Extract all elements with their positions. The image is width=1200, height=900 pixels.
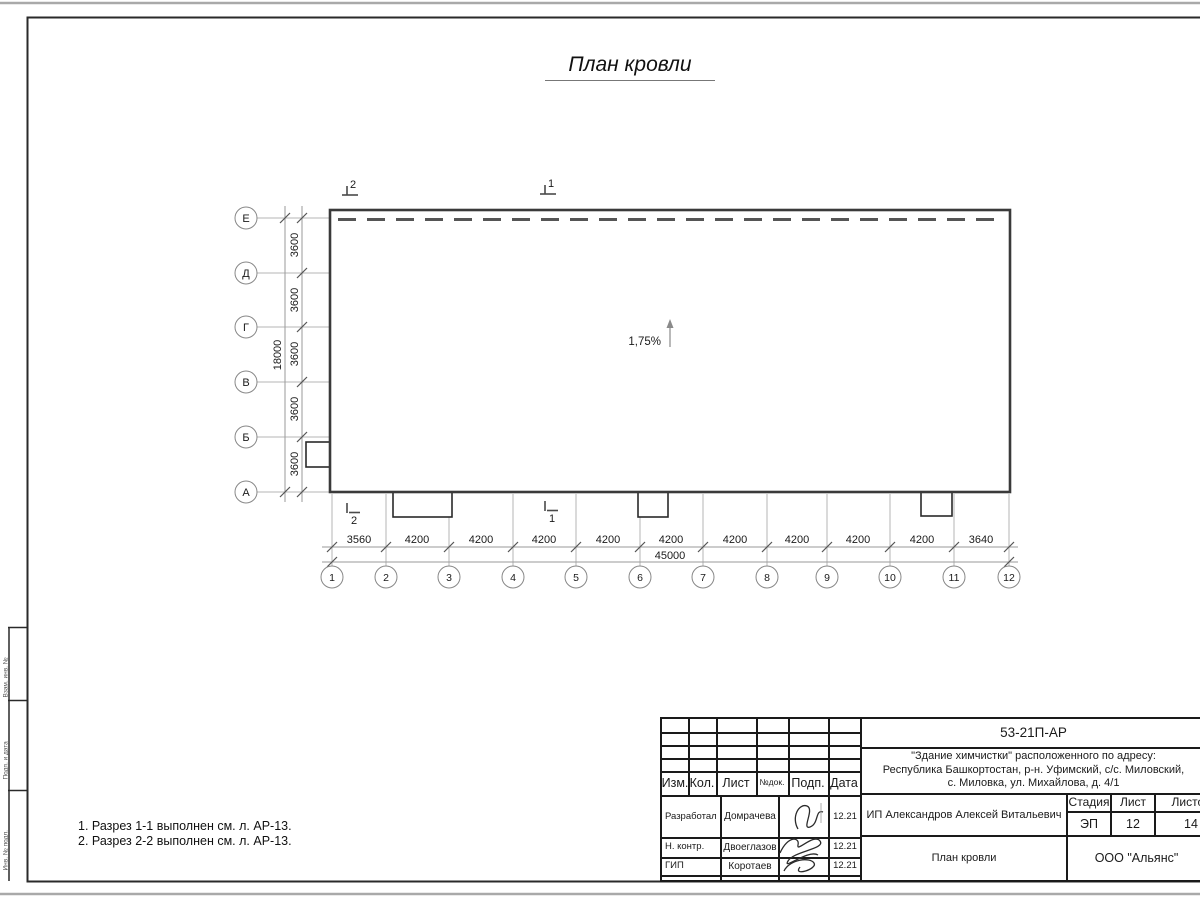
page-title: План кровли [545,53,715,81]
roof-projection-left [306,442,330,467]
col-axis-label: 8 [764,572,770,584]
signature-ncontrol-gip [774,831,830,879]
tb-date-ncontrol: 12.21 [830,838,860,857]
row-axis-label: Е [242,213,249,225]
slope-arrow-head [667,319,674,328]
row-axis-label: Д [242,268,250,280]
dim-value: 3560 [347,534,371,546]
section-marker-bottom-1: 1 [545,501,558,525]
slope-annotation: 1,75% [628,319,673,348]
tb-role-developer: Разработал [662,797,720,837]
col-axis-label: 7 [700,572,706,584]
dim-value: 4200 [405,534,429,546]
tb-col-data: Дата [828,771,860,795]
col-axis-label: 6 [637,572,643,584]
side-stamp-grid [8,627,27,881]
tb-role-ncontrol: Н. контр. [662,838,720,857]
tb-doc-number: 53-21П-АР [862,719,1200,747]
tb-sheets-label: Листов [1156,795,1200,811]
tb-company: ООО "Альянс" [1068,837,1200,880]
title-block: Изм. Кол. Лист №док. Подп. Дата Разработ… [660,717,1200,882]
col-axis-label: 11 [949,572,960,584]
row-dimension-texts: 3600 3600 3600 3600 3600 18000 [272,233,301,476]
dim-total-value: 45000 [655,550,686,562]
drawing-sheet: Е Д Г В Б А 1 2 3 4 5 6 7 8 9 10 11 12 3… [0,0,1200,900]
roof-perimeter [330,210,1010,492]
section-marker-top-1: 1 [540,178,556,194]
section-label: 2 [350,179,356,191]
row-axis-label: А [242,487,250,499]
dim-value: 3600 [289,288,301,312]
dim-value: 4200 [910,534,934,546]
tb-sheet-label: Лист [1112,795,1154,811]
row-axis-label: Б [242,432,249,444]
roof-outline [306,210,1010,517]
section-label: 2 [351,515,357,527]
tb-col-ndok: №док. [756,771,788,795]
dim-value: 4200 [659,534,683,546]
tb-drawing-title: План кровли [862,837,1066,880]
tb-client: ИП Александров Алексей Витальевич [862,795,1066,835]
roof-projection-bottom-1 [393,492,452,517]
col-axis-label: 12 [1003,572,1015,584]
row-axis-label: Г [243,322,249,334]
dim-value: 3600 [289,233,301,257]
tb-object-address: "Здание химчистки" расположенного по адр… [862,748,1200,793]
dim-total-value: 18000 [272,340,284,371]
col-axis-label: 10 [884,572,896,584]
col-axis-label: 4 [510,572,516,584]
dim-value: 4200 [723,534,747,546]
tb-date-gip: 12.21 [830,858,860,875]
section-markers: 2 1 2 1 [342,178,558,527]
col-axis-label: 9 [824,572,830,584]
tb-col-podp: Подп. [788,771,828,795]
dim-value: 4200 [469,534,493,546]
tb-address-line2: Республика Башкортостан, р-н. Уфимский, … [883,764,1184,778]
dim-value: 3600 [289,342,301,366]
tb-name-developer: Домрачева [722,797,778,837]
dim-value: 3600 [289,452,301,476]
dim-value: 4200 [785,534,809,546]
col-axis-label: 3 [446,572,452,584]
dim-value: 4200 [846,534,870,546]
note-section-1: 1. Разрез 1-1 выполнен см. л. АР-13. [78,819,292,833]
section-label: 1 [549,513,555,525]
dim-value: 4200 [596,534,620,546]
section-label: 1 [548,178,554,190]
tb-address-line3: с. Миловка, ул. Михайлова, д. 4/1 [948,777,1120,791]
tb-sheets-value: 14 [1156,813,1200,835]
dim-value: 3600 [289,397,301,421]
col-axis-label: 5 [573,572,579,584]
col-axis-bubbles: 1 2 3 4 5 6 7 8 9 10 11 12 [321,566,1020,588]
side-stamp-label-1: Взам. инв. № [3,628,10,698]
side-stamp-label-2: Подп. и дата [3,710,10,780]
note-section-2: 2. Разрез 2-2 выполнен см. л. АР-13. [78,834,292,848]
col-dimension-texts: 3560 4200 4200 4200 4200 4200 4200 4200 … [347,534,993,562]
dim-value: 4200 [532,534,556,546]
tb-name-ncontrol: Двоеглазов [722,838,778,857]
tb-col-izm: Изм. [662,771,688,795]
roof-projection-bottom-3 [921,492,952,516]
tb-date-developer: 12.21 [830,801,860,833]
tb-stage-value: ЭП [1068,813,1110,835]
dim-value: 3640 [969,534,993,546]
section-marker-bottom-2: 2 [347,503,360,527]
row-axis-bubbles: Е Д Г В Б А [235,207,257,503]
tb-stage-label: Стадия [1068,795,1110,811]
tb-role-gip: ГИП [662,858,720,875]
slope-value: 1,75% [628,336,661,348]
tb-col-kol: Кол. [688,771,716,795]
tb-sheet-value: 12 [1112,813,1154,835]
tb-col-list: Лист [716,771,756,795]
section-marker-top-2: 2 [342,179,358,195]
row-axis-label: В [242,377,249,389]
col-axis-label: 1 [329,572,335,584]
roof-projection-bottom-2 [638,492,668,517]
col-axis-label: 2 [383,572,389,584]
tb-address-line1: "Здание химчистки" расположенного по адр… [911,750,1156,764]
side-stamp-label-3: Инв. № подл. [3,801,10,871]
tb-name-gip: Коротаев [722,858,778,875]
